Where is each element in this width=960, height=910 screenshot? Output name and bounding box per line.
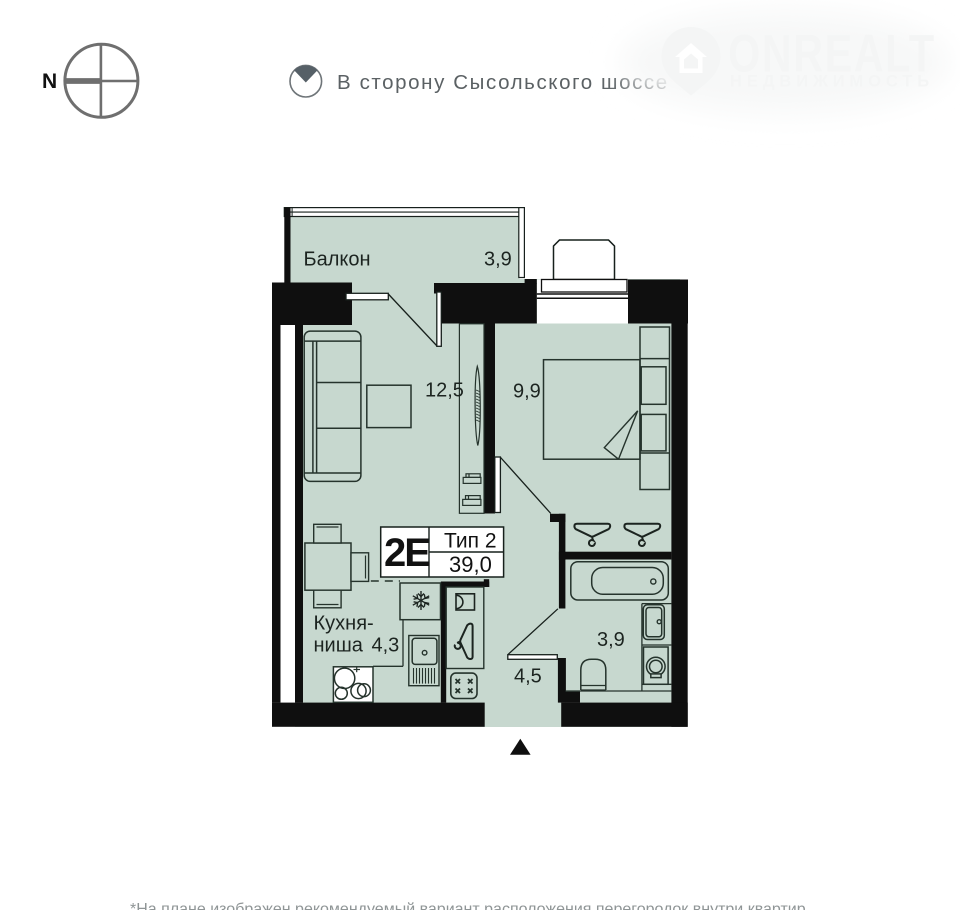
svg-text:9,9: 9,9 <box>513 381 541 403</box>
svg-text:Кухня-: Кухня- <box>314 613 374 635</box>
svg-text:Балкон: Балкон <box>304 249 371 271</box>
svg-text:4,3: 4,3 <box>372 635 400 657</box>
svg-text:2Е: 2Е <box>384 531 430 575</box>
svg-text:В сторону Сысольского шоссе: В сторону Сысольского шоссе <box>337 71 669 94</box>
svg-text:N: N <box>42 70 57 93</box>
svg-text:3,9: 3,9 <box>597 629 625 651</box>
svg-text:39,0: 39,0 <box>449 552 492 577</box>
svg-text:3,9: 3,9 <box>484 249 512 271</box>
svg-text:12,5: 12,5 <box>425 380 464 402</box>
svg-text:ниша: ниша <box>314 635 364 657</box>
svg-text:НЕДВИЖИМОСТЬ: НЕДВИЖИМОСТЬ <box>730 73 934 91</box>
svg-text:Тип 2: Тип 2 <box>444 530 497 553</box>
svg-text:4,5: 4,5 <box>514 666 542 688</box>
svg-text:*На плане изображен рекомендуе: *На плане изображен рекомендуемый вариан… <box>130 901 806 910</box>
